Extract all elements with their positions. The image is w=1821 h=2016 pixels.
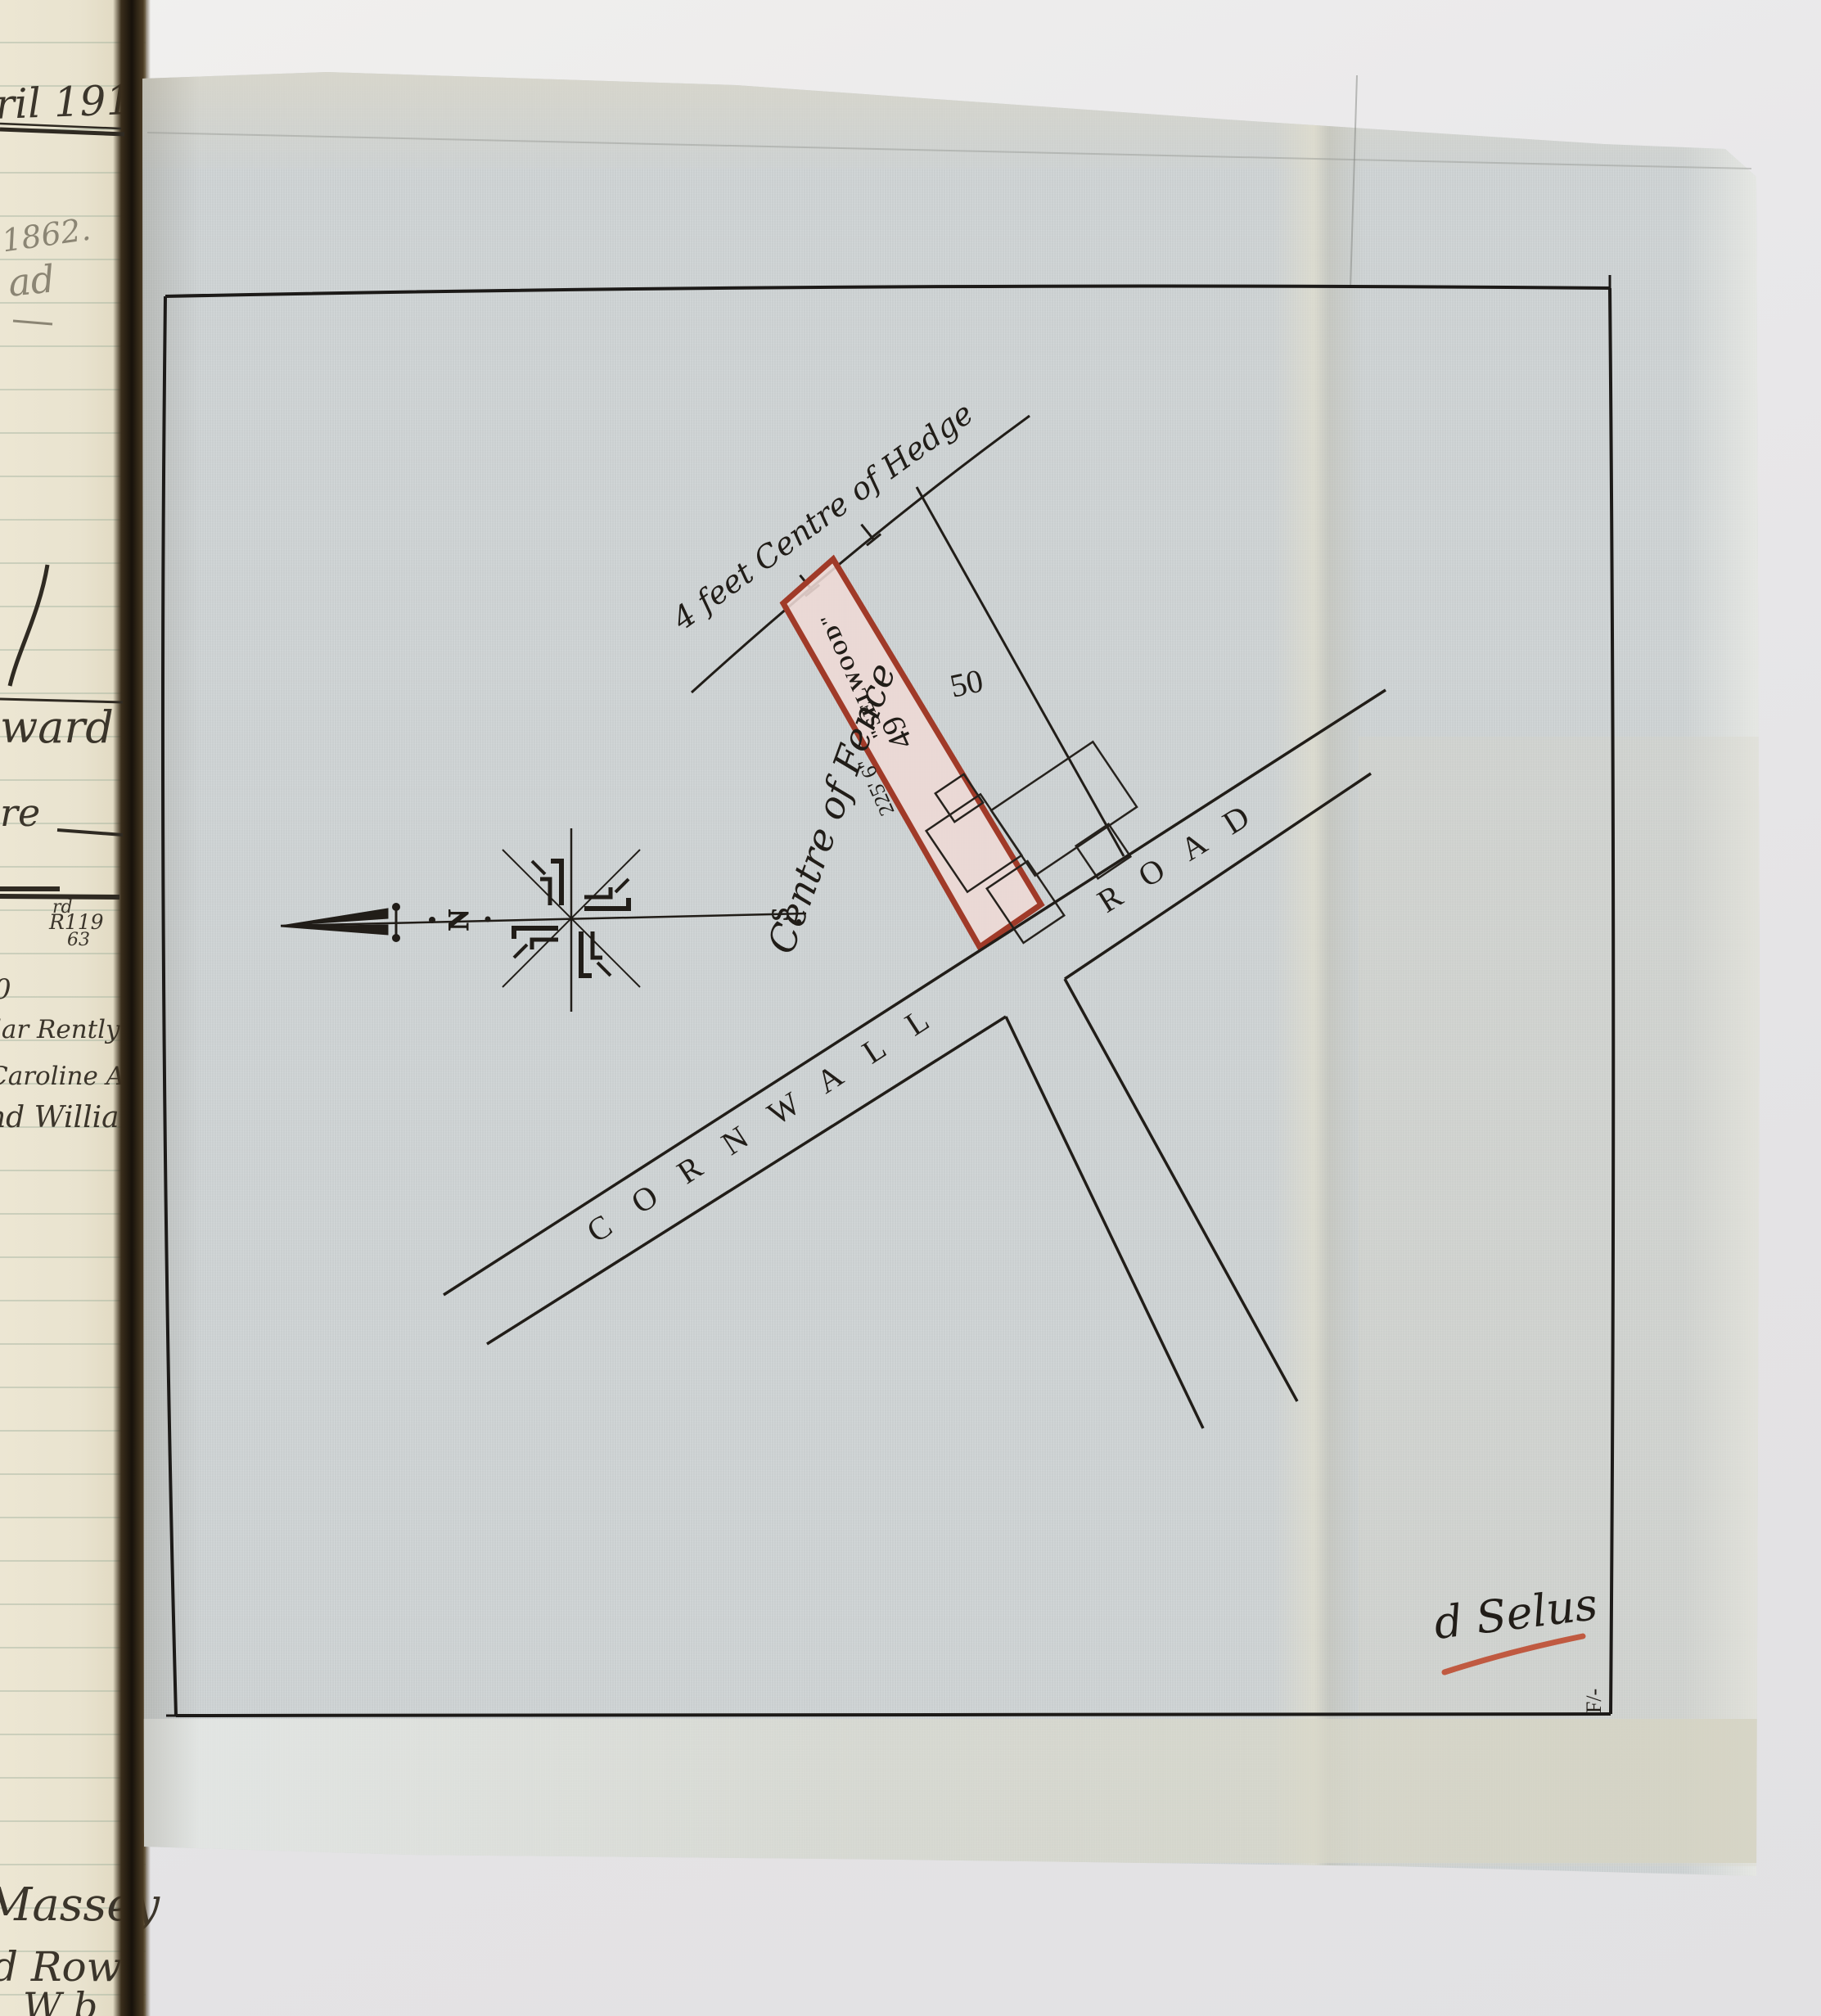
ledger-entry-wb: W b xyxy=(23,1987,97,2016)
ledger-entry-re: re xyxy=(0,794,40,832)
fabric-warm-tint xyxy=(1359,737,1760,1866)
ledger-pencil-word: ad xyxy=(7,259,56,302)
tracing-cloth-sheet xyxy=(0,0,1821,2016)
fabric-left-shadow xyxy=(142,69,200,1850)
ledger-annotation-num: 63 xyxy=(67,931,90,949)
ledger-entry-ward: ward xyxy=(0,706,114,750)
scanned-deed-plan-page: ril 191 1862. ad ward re rd R119 63 0 ul… xyxy=(0,0,1821,2016)
fabric-vertical-crease xyxy=(1273,69,1363,1878)
fabric-top-fold xyxy=(142,69,1760,169)
ledger-entry-rently: ular Rently xyxy=(0,1017,120,1043)
ledger-partial-digit: 0 xyxy=(0,976,11,1003)
fabric-bottom-fold xyxy=(142,1719,1760,1863)
ledger-entry-row: d Row xyxy=(0,1946,121,1987)
ledger-pencil-year: 1862. xyxy=(0,214,92,257)
